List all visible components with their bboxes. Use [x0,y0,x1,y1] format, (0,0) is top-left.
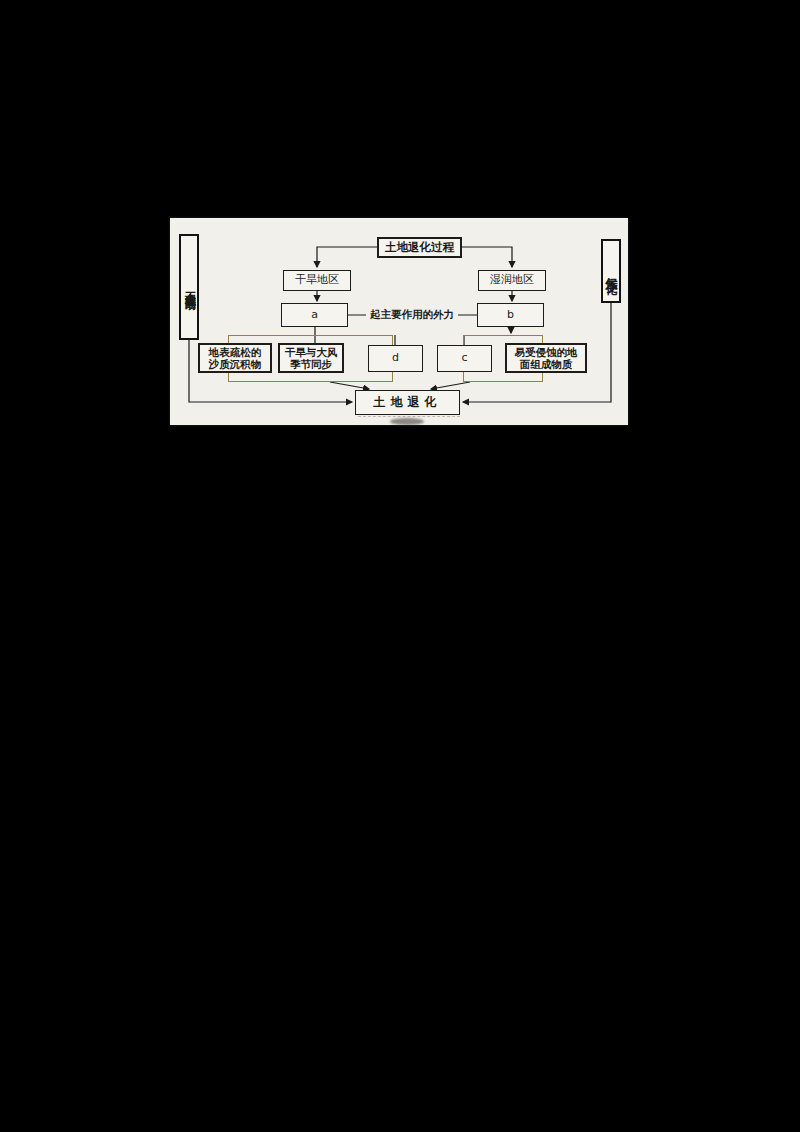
drought-wind-line1: 干旱与大风 [285,346,338,358]
blank-c-box: c [437,345,492,372]
blank-d-label: d [392,352,399,365]
blank-a-box: a [281,303,348,327]
sandy-sediment-label: 地表疏松的 沙质沉积物 [209,346,262,370]
blank-a-label: a [311,309,318,322]
ink-smudge [390,418,424,425]
diagram-panel: 不合理的人类活动 气候变化 土地退化过程 干旱地区 湿润地区 a 起主要作用的外… [170,218,628,425]
page-background: { "diagram": { "title_box": "土地退化过程", "l… [0,0,800,1132]
climate-change-box: 气候变化 [601,239,621,303]
humid-region-label: 湿润地区 [490,274,534,287]
humid-region-box: 湿润地区 [478,270,546,291]
erodible-material-line2: 面组成物质 [520,358,573,370]
blank-b-box: b [477,303,544,327]
human-activity-label: 不合理的人类活动 [182,283,197,291]
print-artifact-dash [358,416,460,417]
land-degradation-result-box: 土地退化 [355,390,460,415]
drought-wind-label: 干旱与大风 季节同步 [285,346,338,370]
land-degradation-result-label: 土地退化 [374,396,442,410]
erodible-material-line1: 易受侵蚀的地 [515,346,578,358]
land-degradation-process-box: 土地退化过程 [377,237,462,258]
climate-change-label: 气候变化 [603,267,620,275]
arid-region-label: 干旱地区 [295,274,339,287]
blank-c-label: c [461,352,467,365]
land-degradation-process-label: 土地退化过程 [385,241,454,254]
erodible-material-box: 易受侵蚀的地 面组成物质 [505,343,587,373]
sandy-sediment-line2: 沙质沉积物 [209,358,262,370]
drought-wind-box: 干旱与大风 季节同步 [278,343,344,373]
external-force-label: 起主要作用的外力 [366,308,458,322]
sandy-sediment-box: 地表疏松的 沙质沉积物 [198,343,272,373]
blank-b-label: b [507,309,514,322]
blank-d-box: d [368,345,423,372]
drought-wind-line2: 季节同步 [290,358,332,370]
human-activity-box: 不合理的人类活动 [179,234,199,340]
sandy-sediment-line1: 地表疏松的 [209,346,262,358]
arid-region-box: 干旱地区 [283,270,351,291]
erodible-material-label: 易受侵蚀的地 面组成物质 [515,346,578,370]
